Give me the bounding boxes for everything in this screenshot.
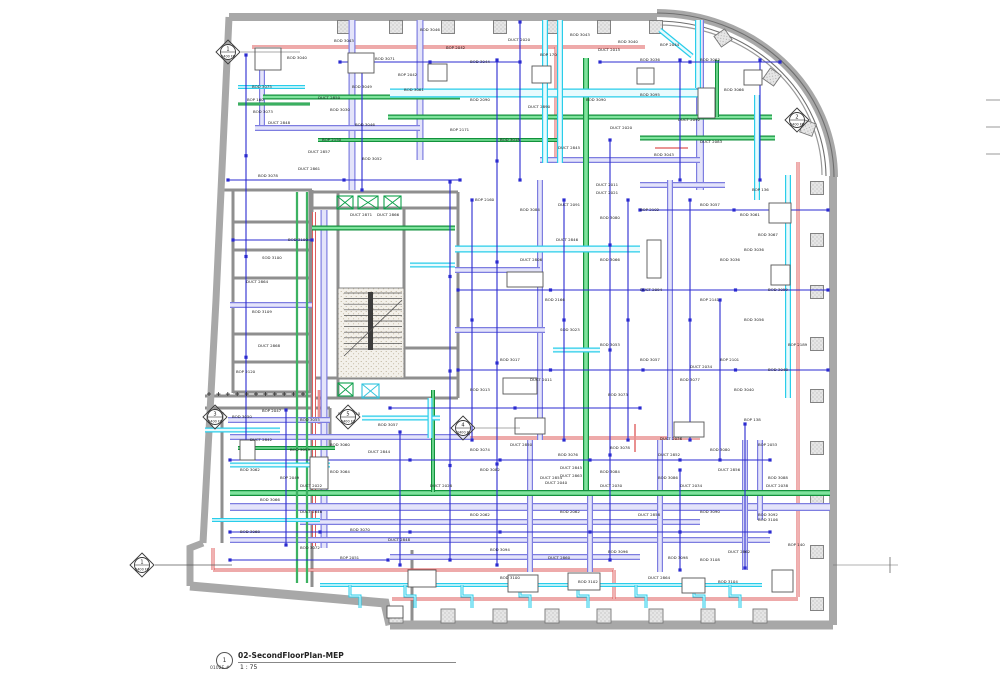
equipment-tag: DUCT 2860	[548, 555, 571, 560]
exterior-wall	[203, 17, 229, 543]
pipe-fitting	[338, 60, 341, 63]
equipment-tag: BOD 3078	[610, 445, 630, 450]
view-number: 1	[223, 657, 227, 664]
column	[811, 546, 824, 559]
pipe-fitting	[626, 438, 629, 441]
pipe-fitting	[318, 530, 321, 533]
pipe-fitting	[518, 20, 521, 23]
equipment-tag: BOD 3062	[240, 467, 260, 472]
pipe-fitting	[470, 198, 473, 201]
pipe-fitting	[768, 530, 771, 533]
equipment-tag: DUCT 2094	[640, 287, 663, 292]
floor-plan-canvas[interactable]: BOD 3040BOD 3043BOD 3075BOP 160BOD 3073D…	[0, 0, 1001, 692]
section-marker-number: 4	[461, 423, 464, 429]
pipe-fitting	[608, 243, 611, 246]
pipe-fitting	[778, 60, 781, 63]
pipe-fitting	[758, 58, 761, 61]
equipment-tag: DUCT 2038	[766, 483, 789, 488]
pipe-fitting	[226, 178, 229, 181]
equipment-tag: BOP 2049	[280, 475, 300, 480]
equipment-tag: DUCT 2020	[508, 37, 531, 42]
pipe-fitting	[231, 238, 234, 241]
column	[811, 234, 824, 247]
column	[494, 21, 507, 34]
equipment-tag: BOD 3082	[480, 467, 500, 472]
pipe-fitting	[470, 438, 473, 441]
pipe-fitting	[826, 288, 829, 291]
view-title[interactable]: 02-SecondFloorPlan-MEP	[238, 651, 456, 663]
equipment-tag: DUCT 2864	[246, 279, 269, 284]
pipe-fitting	[448, 464, 451, 467]
equipment-tag: BOP 2101	[720, 357, 740, 362]
section-marker-number: 3	[213, 412, 216, 418]
equipment-tag: DUCT 2857	[308, 149, 331, 154]
section-marker-tag: 2400 FS	[208, 420, 222, 424]
equipment-tag: DUCT 2021	[596, 190, 619, 195]
section-marker-number: 5	[346, 412, 349, 418]
equipment-tag: BOD 3078	[258, 173, 278, 178]
equipment-tag: BOP 2150	[322, 137, 342, 142]
equipment-tag: BOD 3106	[758, 517, 778, 522]
equipment-tag: BOP 2102	[640, 207, 660, 212]
equipment-tag: BOD 3030	[330, 107, 350, 112]
pipe-fitting	[678, 568, 681, 571]
equipment-tag: SOD 3023	[560, 327, 580, 332]
pipe-fitting	[678, 178, 681, 181]
equipment-tag: BOD 3098	[668, 555, 688, 560]
pipe-fitting	[498, 530, 501, 533]
equipment-tag: BOD 3060	[330, 442, 350, 447]
pipe-fitting	[228, 558, 231, 561]
equipment-tag: BOD 3013	[470, 387, 490, 392]
equipment-box	[772, 570, 793, 592]
pipe-fitting	[678, 458, 681, 461]
equipment-tag: DUCT 2866	[377, 212, 400, 217]
pipe-fitting	[678, 530, 681, 533]
mep-floor-plan-view[interactable]: BOD 3040BOD 3043BOD 3075BOP 160BOD 3073D…	[0, 0, 1001, 692]
equipment-tag: BOD 3049	[352, 84, 372, 89]
section-marker-number: 2	[795, 115, 798, 121]
equipment-tag: BOD 3018	[500, 137, 520, 142]
equipment-tag: BOD 3076	[558, 452, 578, 457]
equipment-box	[515, 418, 545, 434]
equipment-tag: BOD 3066	[724, 87, 744, 92]
equipment-tag: BOD 3056	[744, 317, 764, 322]
equipment-box	[428, 64, 447, 81]
equipment-box	[769, 203, 791, 223]
equipment-tag: BOD 3040	[618, 39, 638, 44]
equipment-tag: DUCT 2850	[510, 442, 533, 447]
pipe-fitting	[743, 422, 746, 425]
pipe-fitting	[826, 208, 829, 211]
equipment-tag: DUCT 2844	[368, 449, 391, 454]
pipe-fitting	[284, 408, 287, 411]
pipe-fitting	[518, 60, 521, 63]
equipment-tag: BOD 2062	[470, 512, 490, 517]
pipe-fitting	[598, 60, 601, 63]
pipe-fitting	[448, 558, 451, 561]
equipment-tag: BOP 2051	[340, 555, 360, 560]
pipe-fitting	[244, 154, 247, 157]
equipment-tag: BOD 3048	[768, 367, 788, 372]
pipe-fitting	[588, 530, 591, 533]
pipe-fitting	[732, 208, 735, 211]
equipment-tag: DUCT 2806	[520, 257, 543, 262]
equipment-tag: BOD 3084	[520, 207, 540, 212]
column	[811, 390, 824, 403]
equipment-box	[744, 70, 762, 85]
equipment-tag: BOD 3017	[500, 357, 520, 362]
pipe-fitting	[638, 406, 641, 409]
equipment-tag: BOD 3057	[378, 422, 398, 427]
equipment-tag: BOD 3063	[700, 57, 720, 62]
equipment-tag: DUCT 2856	[718, 467, 741, 472]
equipment-tag: DUCT 2030	[600, 483, 623, 488]
equipment-tag: BOD 3050	[232, 414, 252, 419]
equipment-box	[387, 606, 403, 618]
pipe-fitting	[448, 275, 451, 278]
exterior-wall	[190, 543, 203, 586]
equipment-tag: DUCT 2846	[300, 509, 323, 514]
equipment-tag: BOD 3046	[355, 122, 375, 127]
equipment-tag: BOD 3064	[330, 469, 350, 474]
pipe-fitting	[456, 288, 459, 291]
pipe-fitting	[688, 198, 691, 201]
equipment-tag: BOP 2042	[446, 45, 466, 50]
section-marker-tag: 2400 FE	[135, 568, 149, 572]
pipe-fitting	[428, 60, 431, 63]
equipment-tag: BOD 3104	[718, 579, 738, 584]
equipment-tag: DUCT 2862	[728, 549, 751, 554]
equipment-tag: BOD 3077	[680, 377, 700, 382]
equipment-tag: DUCT 2863	[560, 473, 583, 478]
pipe-fitting	[228, 458, 231, 461]
equipment-tag: DUCT 2011	[530, 377, 553, 382]
pipe-fitting	[342, 178, 345, 181]
equipment-tag: DUCT 2890	[528, 104, 551, 109]
equipment-tag: BOD 3109	[252, 309, 272, 314]
equipment-tag: BOD 3090	[586, 97, 606, 102]
equipment-tag: BOP 140	[788, 542, 805, 547]
column	[701, 609, 715, 623]
equipment-tag: BOD 3073	[253, 109, 273, 114]
equipment-tag: BOD 3040	[734, 387, 754, 392]
pipe-fitting	[495, 260, 498, 263]
equipment-tag: BOD 3072	[300, 545, 320, 550]
pipe-fitting	[386, 558, 389, 561]
equipment-tag: BOD 3040	[287, 55, 307, 60]
equipment-tag: BOD 3088	[768, 475, 788, 480]
equipment-tag: BOD 3075	[252, 84, 272, 89]
equipment-tag: BOD 3053	[600, 342, 620, 347]
pipe-fitting	[228, 530, 231, 533]
equipment-tag: BOD 3043	[570, 32, 590, 37]
equipment-tag: BOP 2189	[788, 342, 808, 347]
column	[811, 598, 824, 611]
equipment-tag: BOD 3036	[720, 257, 740, 262]
equipment-tag: BOP 2053	[758, 442, 778, 447]
equipment-tag: BOP 2171	[450, 127, 470, 132]
pipe-fitting	[734, 288, 737, 291]
equipment-tag: BOP 2120	[236, 369, 256, 374]
equipment-box	[348, 53, 374, 73]
equipment-tag: BOD 3061	[404, 87, 424, 92]
pipe-fitting	[448, 180, 451, 183]
equipment-tag: BOD 3095	[640, 92, 660, 97]
pipe-fitting	[734, 368, 737, 371]
pipe-fitting	[608, 348, 611, 351]
pipe-fitting	[562, 318, 565, 321]
pipe-fitting	[398, 430, 401, 433]
equipment-tag: BOD 3059	[290, 447, 310, 452]
equipment-box	[682, 578, 705, 593]
equipment-tag: BOP 160	[247, 97, 264, 102]
view-scale: 1 : 75	[240, 664, 257, 671]
pipe-fitting	[456, 368, 459, 371]
pipe-fitting	[408, 458, 411, 461]
pipe-fitting	[743, 566, 746, 569]
pipe-fitting	[498, 458, 501, 461]
equipment-tag: BOD 3059	[768, 287, 788, 292]
equipment-tag: DUCT 2015	[598, 47, 621, 52]
equipment-box	[637, 68, 654, 84]
column	[597, 609, 611, 623]
equipment-tag: BOD 3066	[260, 497, 280, 502]
pipe-fitting	[549, 368, 552, 371]
equipment-tag: BOP 170	[540, 52, 557, 57]
equipment-tag: BOD 3096	[608, 549, 628, 554]
pipe-fitting	[408, 530, 411, 533]
pipe-fitting	[495, 462, 498, 465]
equipment-tag: BOD 3080	[710, 447, 730, 452]
equipment-tag: BOD 3086	[658, 475, 678, 480]
equipment-tag: BOD 3068	[240, 529, 260, 534]
equipment-tag: DUCT 2034	[690, 364, 713, 369]
pipe-fitting	[588, 458, 591, 461]
equipment-tag: DUCT 2845	[560, 465, 583, 470]
equipment-tag: DUCT 2850	[318, 95, 341, 100]
pipe-fitting	[641, 368, 644, 371]
equipment-box	[240, 440, 255, 460]
equipment-box	[507, 272, 543, 287]
view-titleblock: 1 0102E.# 02-SecondFloorPlan-MEP 1 : 75	[210, 648, 480, 682]
equipment-tag: DUCT 2858	[638, 512, 661, 517]
equipment-tag: BOD 3046	[420, 27, 440, 32]
pipe-fitting	[626, 318, 629, 321]
section-marker-number: 1	[226, 47, 229, 53]
section-marker-tag: 2400 ES	[341, 420, 355, 424]
equipment-tag: BOD 3055	[300, 417, 320, 422]
arc-edge	[657, 21, 826, 176]
equipment-tag: BOD 3057	[640, 357, 660, 362]
pipe-fitting	[448, 369, 451, 372]
equipment-tag: BOD 3066	[600, 257, 620, 262]
equipment-tag: BOD 2062	[560, 509, 580, 514]
equipment-tag: BOD 3094	[490, 547, 510, 552]
column	[753, 609, 767, 623]
column	[811, 338, 824, 351]
column	[811, 442, 824, 455]
equipment-tag: BOD 3084	[600, 469, 620, 474]
equipment-tag: BOP 2160	[475, 197, 495, 202]
equipment-tag: BOD 3074	[470, 447, 490, 452]
equipment-tag: DUCT 2848	[388, 537, 411, 542]
column	[649, 609, 663, 623]
pipe-fitting	[608, 558, 611, 561]
pipe-fitting	[758, 178, 761, 181]
equipment-tag: BOD 3044	[470, 59, 490, 64]
equipment-box	[408, 570, 436, 587]
equipment-tag: BOD 3036	[640, 57, 660, 62]
section-marker-tag: 2400 FB	[790, 123, 805, 127]
equipment-tag: BOP 136	[752, 187, 769, 192]
pipe-fitting	[826, 368, 829, 371]
equipment-tag: BOD 3108	[700, 557, 720, 562]
pipe-fitting	[458, 178, 461, 181]
section-marker-number: 1	[140, 560, 143, 566]
pipe-fitting	[562, 438, 565, 441]
pipe-fitting	[388, 406, 391, 409]
equipment-tag: BOD 3061	[740, 212, 760, 217]
pipe-fitting	[549, 288, 552, 291]
column	[545, 609, 559, 623]
equipment-tag: DUCT 2871	[350, 212, 373, 217]
pipe-fitting	[284, 543, 287, 546]
equipment-tag: DUCT 2083	[700, 139, 723, 144]
equipment-tag: BOP 2042	[398, 72, 418, 77]
equipment-tag: DUCT 2034	[680, 483, 703, 488]
pipe-fitting	[688, 318, 691, 321]
equipment-tag: DUCT 2845	[558, 145, 581, 150]
equipment-tag: BOD 3070	[350, 527, 370, 532]
equipment-tag: SOD 3100	[262, 255, 282, 260]
pipe-fitting	[688, 60, 691, 63]
pipe-fitting	[244, 53, 247, 56]
equipment-tag: DUCT 2092	[678, 117, 701, 122]
column	[441, 609, 455, 623]
pipe-fitting	[495, 563, 498, 566]
pipe-fitting	[244, 255, 247, 258]
pipe-fitting	[470, 318, 473, 321]
pipe-fitting	[608, 453, 611, 456]
equipment-tag: BOD 3043	[334, 38, 354, 43]
equipment-tag: BOD 2090	[470, 97, 490, 102]
equipment-box	[771, 265, 790, 285]
equipment-tag: DUCT 2868	[258, 343, 281, 348]
equipment-box	[255, 48, 281, 70]
equipment-tag: DUCT 2022	[300, 483, 323, 488]
equipment-tag: DUCT 2846	[556, 237, 579, 242]
pipe-fitting	[768, 458, 771, 461]
equipment-box	[532, 66, 551, 83]
pipe-fitting	[626, 198, 629, 201]
equipment-tag: BOD 2166	[545, 297, 565, 302]
stair-stringer	[368, 292, 373, 350]
equipment-tag: BOD 3080	[600, 215, 620, 220]
equipment-tag: BOD 3067	[758, 232, 778, 237]
section-marker-tag: 2400 FP	[221, 55, 235, 59]
equipment-tag: BOD 3071	[375, 56, 395, 61]
equipment-tag: DUCT 2091	[558, 202, 581, 207]
equipment-tag: BOP 2047	[262, 408, 282, 413]
equipment-tag: DUCT 2011	[596, 182, 619, 187]
equipment-tag: DUCT 2852	[658, 452, 681, 457]
equipment-tag: BOD 3102	[578, 579, 598, 584]
pipe-fitting	[495, 361, 498, 364]
equipment-tag: DUCT 2036	[660, 436, 683, 441]
column	[493, 609, 507, 623]
equipment-box	[698, 88, 715, 118]
equipment-tag: BOD 3057	[700, 202, 720, 207]
sheet-ref: 0102E.#	[210, 666, 230, 671]
equipment-tag: BOP 2141	[700, 297, 720, 302]
pipe-fitting	[518, 178, 521, 181]
pipe-fitting	[310, 238, 313, 241]
equipment-box	[674, 422, 704, 437]
pipe-fitting	[678, 468, 681, 471]
equipment-tag: BOD 3073	[608, 392, 628, 397]
column	[811, 182, 824, 195]
equipment-tag: BOD 3090	[700, 509, 720, 514]
column	[442, 21, 455, 34]
pipe-fitting	[495, 159, 498, 162]
column	[763, 68, 781, 86]
pipe-fitting	[513, 406, 516, 409]
pipe-fitting	[688, 438, 691, 441]
equipment-tag: BOD 3043	[654, 152, 674, 157]
pipe-fitting	[608, 138, 611, 141]
column	[811, 286, 824, 299]
equipment-tag: DUCT 2040	[545, 480, 568, 485]
pipe-fitting	[244, 356, 247, 359]
equipment-tag: BOD 3052	[362, 156, 382, 161]
equipment-tag: DUCT 2861	[298, 166, 321, 171]
column	[598, 21, 611, 34]
pipe-fitting	[398, 563, 401, 566]
equipment-tag: DUCT 2026	[430, 483, 453, 488]
section-marker-tag: 2400 B	[457, 431, 470, 435]
column	[390, 21, 403, 34]
equipment-tag: BOP 2044	[660, 42, 680, 47]
equipment-box	[647, 240, 661, 278]
equipment-tag: BOD 3100	[500, 575, 520, 580]
pipe-fitting	[360, 188, 363, 191]
pipe-fitting	[495, 58, 498, 61]
equipment-tag: BOP 138	[744, 417, 761, 422]
equipment-tag: BOD 3100	[288, 237, 308, 242]
pipe-fitting	[678, 58, 681, 61]
equipment-tag: DUCT 2864	[648, 575, 671, 580]
equipment-tag: DUCT 2842	[250, 437, 273, 442]
equipment-tag: DUCT 2848	[268, 120, 291, 125]
equipment-tag: DUCT 2020	[610, 125, 633, 130]
equipment-tag: BOD 3036	[744, 247, 764, 252]
